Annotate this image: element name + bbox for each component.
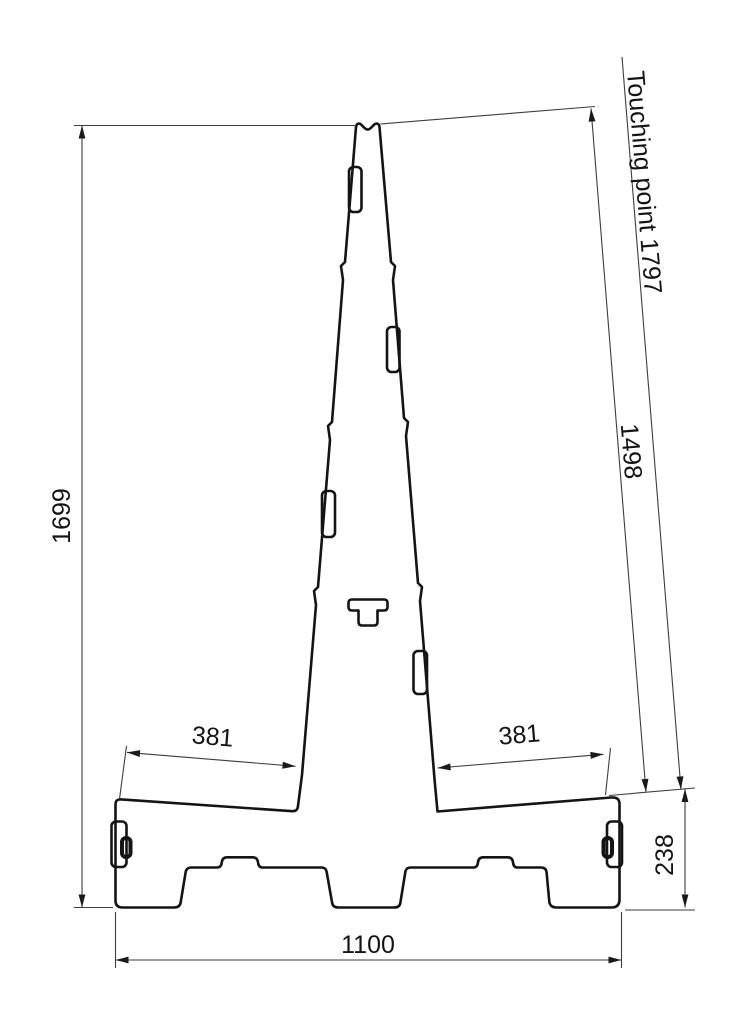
arrowhead — [682, 895, 689, 908]
arrowhead — [590, 752, 603, 759]
arrowhead — [127, 750, 140, 757]
dimension-total-height: 1699 — [48, 126, 356, 908]
dimension-line — [127, 752, 296, 766]
dimension-label-slant-height: 1498 — [615, 423, 647, 481]
dimension-label-total-width: 1100 — [341, 931, 395, 959]
dimension-label-touching-point: Touching point 1797 — [621, 70, 667, 295]
extension-line — [120, 746, 127, 799]
dimension-line — [438, 754, 604, 768]
base-latch-left — [112, 822, 127, 868]
arrowhead — [438, 763, 451, 770]
center-t-slot — [349, 600, 388, 626]
arrowhead — [682, 789, 689, 802]
arrowhead — [79, 126, 86, 139]
technical-drawing-page: 1699 1100 381 381 238 — [0, 0, 745, 1024]
arrowhead — [677, 776, 684, 789]
extension-line — [606, 748, 611, 795]
extension-line — [381, 107, 596, 125]
arrowhead — [116, 957, 129, 964]
dimension-total-width: 1100 — [116, 912, 622, 968]
extension-line — [609, 788, 695, 796]
arrowhead — [609, 957, 622, 964]
dimension-right-base-span: 381 — [438, 719, 611, 795]
drawing-canvas: 1699 1100 381 381 238 — [0, 0, 745, 1024]
arrowhead — [79, 895, 86, 908]
arrowhead — [589, 109, 596, 122]
arrowhead — [282, 762, 295, 769]
barrier-profile-outline — [116, 124, 620, 908]
dimension-label-left-base-span: 381 — [191, 721, 235, 752]
dimension-label-total-height: 1699 — [48, 488, 76, 544]
arrowhead — [642, 779, 649, 792]
dimension-label-right-base-span: 381 — [497, 719, 541, 750]
dimension-label-base-height: 238 — [651, 834, 679, 876]
dimension-slant-height: 1498 — [381, 107, 649, 793]
dimension-left-base-span: 381 — [120, 721, 296, 799]
barrier-profile — [112, 124, 623, 908]
